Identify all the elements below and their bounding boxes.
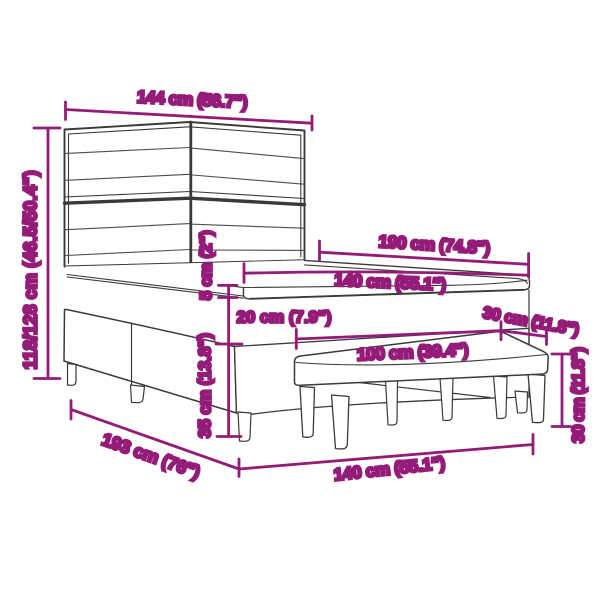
svg-text:30 cm (11.8″): 30 cm (11.8″) [568, 347, 588, 443]
svg-text:35 cm (13.8″): 35 cm (13.8″) [195, 333, 215, 438]
svg-text:20 cm (7.9″): 20 cm (7.9″) [237, 307, 332, 326]
svg-text:118/128 cm (46.5/50.4″): 118/128 cm (46.5/50.4″) [21, 171, 41, 370]
svg-text:5 cm (2″): 5 cm (2″) [197, 230, 216, 300]
